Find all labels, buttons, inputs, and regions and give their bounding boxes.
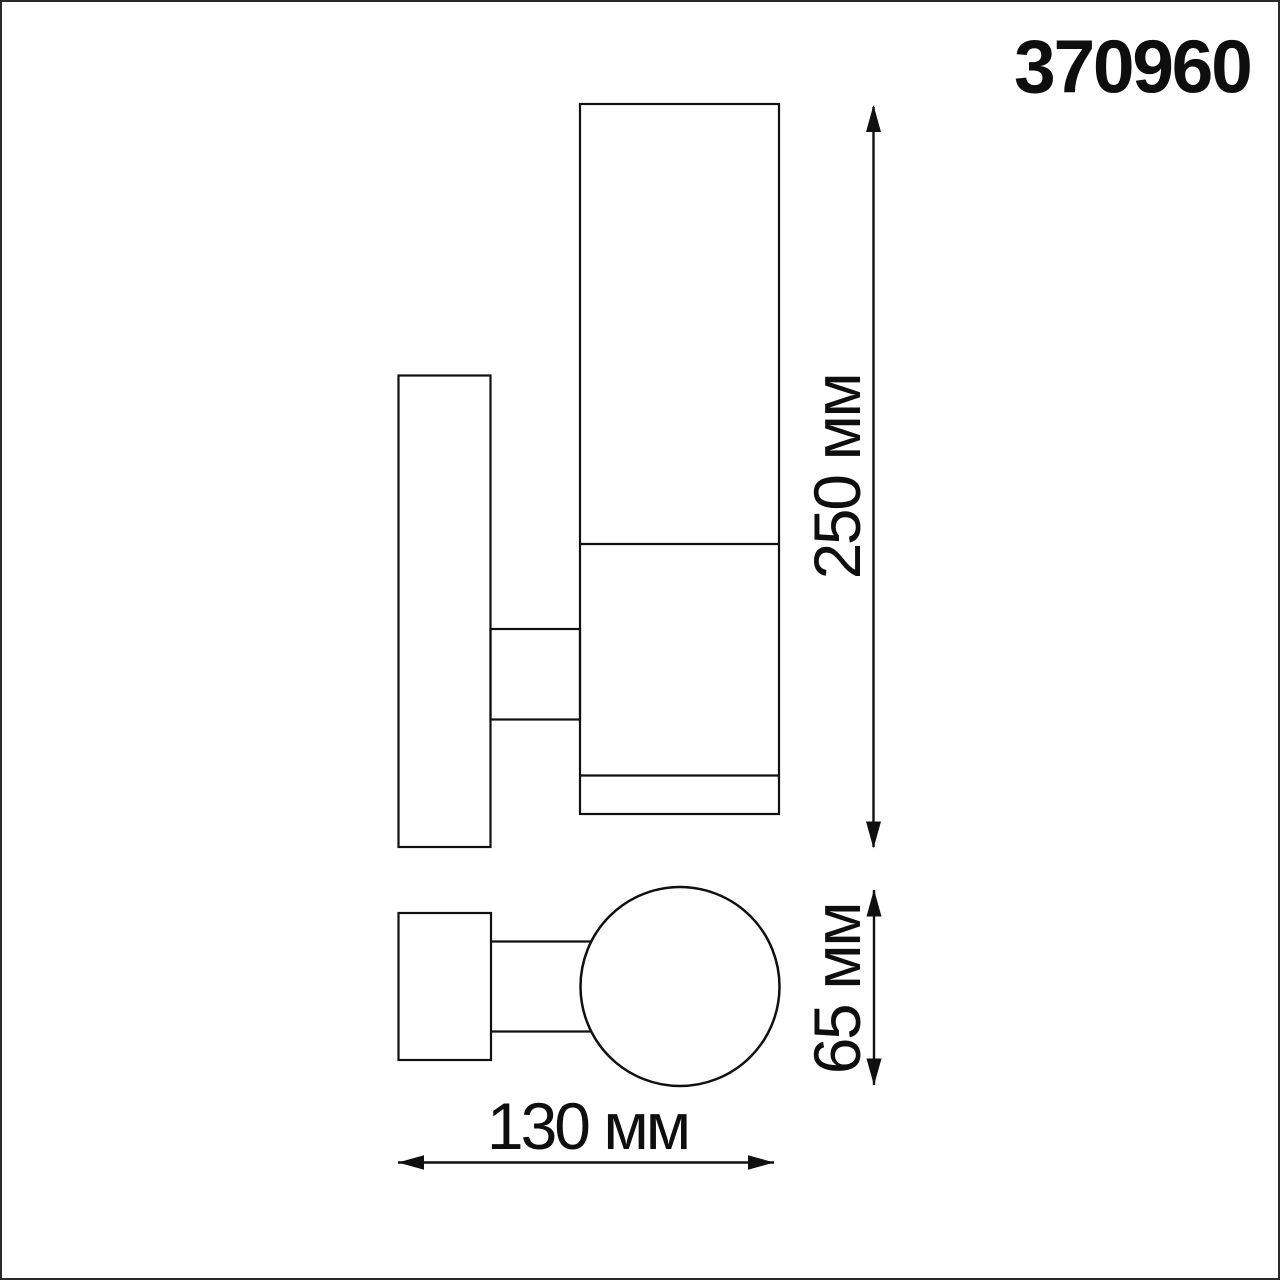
svg-text:65 мм: 65 мм: [800, 904, 874, 1075]
svg-text:130 мм: 130 мм: [487, 1089, 688, 1163]
svg-text:250 мм: 250 мм: [800, 375, 874, 580]
svg-text:370960: 370960: [1014, 25, 1250, 109]
